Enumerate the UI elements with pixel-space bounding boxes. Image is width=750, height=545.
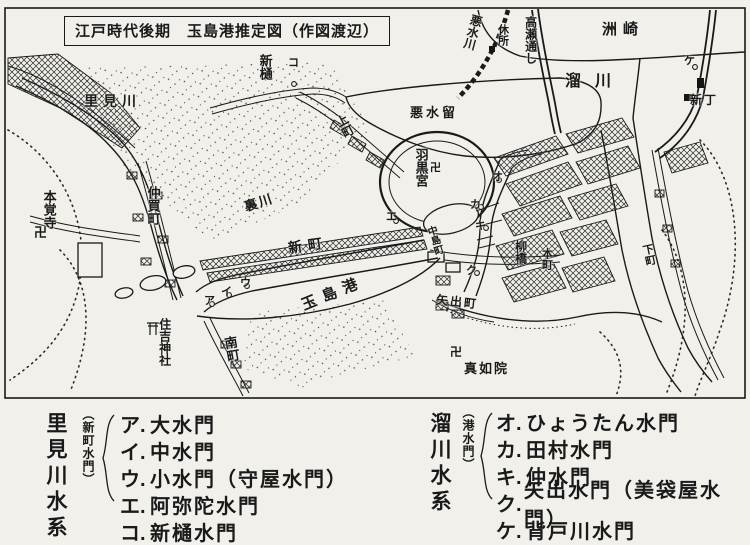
temple-manji-icon: 卍 [450, 346, 462, 359]
legend-item: ク. 矢出水門（美袋屋水門） [496, 489, 750, 516]
legend-item-name: 背戸川水門 [526, 515, 636, 544]
legend-left-items: ア. 大水門 イ. 中水門 ウ. 小水門（守屋水門） エ. 阿弥陀水門 コ. 新… [120, 410, 348, 545]
legend-item: エ. 阿弥陀水門 [120, 491, 348, 518]
map-title: 江戸時代後期 玉島港推定図（作図渡辺） [64, 16, 390, 46]
legend-item-key: ケ. [496, 515, 526, 544]
map-label-sumiyoshi-jinja: 住吉神社 [158, 318, 171, 366]
legend-item-key: キ. [496, 461, 526, 490]
legend-item-key: エ. [120, 490, 150, 519]
map-label-honkakuji: 本覚寺 [42, 190, 56, 229]
gate-marker-ku: ク [466, 266, 477, 277]
gate-marker-e: エ [386, 212, 397, 223]
map-label-suzaki: 洲崎 [602, 22, 644, 38]
map-label-hagurogu: 羽黒宮 [414, 148, 428, 187]
gate-marker-i: イ [221, 287, 232, 298]
map-label-shinhi: 新樋 [258, 54, 272, 80]
map-label-satomigawa: 里見川 [84, 94, 141, 109]
map-label-kyusho: 休所 [496, 24, 508, 46]
legend-item: イ. 中水門 [120, 437, 348, 464]
map-drawing [0, 0, 750, 400]
legend-item-key: オ. [496, 407, 526, 436]
legend-item: ア. 大水門 [120, 410, 348, 437]
legend-right-note: （港水門） [460, 406, 477, 471]
document-page: 江戸時代後期 玉島港推定図（作図渡辺） 洲崎 溜川 悪水川 休所 高瀬通し 新丁… [0, 0, 750, 545]
legend-item-key: イ. [120, 436, 150, 465]
legend-item-key: コ. [120, 517, 150, 545]
legend-right-items: オ. ひょうたん水門 カ. 田村水門 キ. 仲水門 ク. 矢出水門（美袋屋水門）… [496, 408, 750, 543]
legend-item-name: 中水門 [150, 436, 216, 465]
legend-left-brace [100, 412, 116, 504]
legend-item: カ. 田村水門 [496, 435, 750, 462]
legend-item: オ. ひょうたん水門 [496, 408, 750, 435]
map-label-akusuidome: 悪水留 [410, 106, 458, 120]
gate-marker-ko: コ [288, 58, 299, 69]
map-label-shincho: 新丁 [690, 94, 718, 107]
gate-marker-ka: カ [470, 200, 481, 211]
map-label-takasedoshi: 高瀬通し [524, 16, 537, 64]
legend-left-note: （新町水門） [80, 408, 97, 486]
legend-item-key: ア. [120, 409, 150, 438]
gate-marker-ki: キ [475, 221, 486, 232]
legend-item-name: ひょうたん水門 [526, 407, 680, 436]
gate-marker-u: ウ [240, 278, 251, 289]
legend-item-key: カ. [496, 434, 526, 463]
map-label-honmachi: 本町 [540, 248, 552, 270]
map-label-nakagaicho: 仲買町 [146, 186, 160, 225]
legend-item-name: 大水門 [150, 409, 216, 438]
legend-right-system: 溜川水系 [424, 412, 454, 516]
legend-item-key: ウ. [120, 463, 150, 492]
gate-marker-o: オ [492, 172, 503, 183]
legend-item-name: 小水門（守屋水門） [150, 463, 348, 492]
gate-marker-a: ア [204, 296, 215, 307]
legend-item: ウ. 小水門（守屋水門） [120, 464, 348, 491]
legend-item-name: 阿弥陀水門 [150, 490, 260, 519]
legend-item-name: 新樋水門 [150, 517, 238, 545]
legend-item-key: ク. [496, 488, 524, 517]
gate-marker-ke: ケ [684, 56, 695, 67]
map-label-tamarigawa: 溜川 [565, 74, 625, 91]
temple-manji-icon: 卍 [430, 163, 441, 175]
map-label-yanagibashi: 柳橋 [514, 240, 527, 264]
legend-item-name: 田村水門 [526, 434, 614, 463]
legend-right-brace [478, 410, 494, 502]
legend: 里見川水系 （新町水門） ア. 大水門 イ. 中水門 ウ. 小水門（守屋水門） … [0, 400, 750, 545]
map-label-shinnyoin: 真如院 [464, 362, 509, 376]
temple-manji-icon: 卍 [34, 226, 47, 240]
legend-item: コ. 新樋水門 [120, 518, 348, 545]
legend-left-system: 里見川水系 [40, 412, 70, 542]
